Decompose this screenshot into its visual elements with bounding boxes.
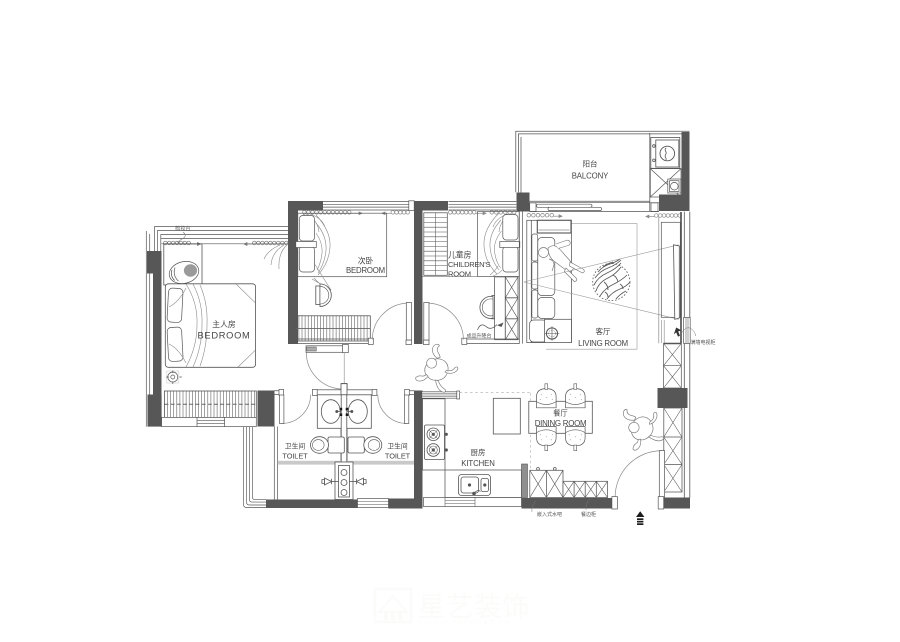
svg-text:ROOM: ROOM — [448, 269, 471, 278]
svg-text:客厅: 客厅 — [596, 326, 611, 336]
svg-text:TOILET: TOILET — [282, 452, 308, 461]
svg-text:卫生间: 卫生间 — [387, 442, 408, 451]
svg-text:主人房: 主人房 — [212, 319, 236, 329]
svg-text:星艺装饰: 星艺装饰 — [418, 591, 530, 622]
svg-text:卫生间: 卫生间 — [285, 442, 306, 451]
svg-text:BALCONY: BALCONY — [572, 172, 609, 181]
svg-text:厨房: 厨房 — [471, 448, 486, 457]
svg-text:儿童房: 儿童房 — [448, 250, 472, 260]
svg-text:次卧: 次卧 — [358, 256, 374, 266]
svg-text:XINGYI DECORATION: XINGYI DECORATION — [418, 620, 510, 627]
svg-text:餐厅: 餐厅 — [553, 409, 567, 418]
svg-text:阳台: 阳台 — [583, 159, 598, 169]
svg-text:餐边柜: 餐边柜 — [581, 511, 596, 518]
svg-text:BEDROOM: BEDROOM — [198, 331, 251, 341]
svg-text:CHILDREN'S: CHILDREN'S — [448, 260, 491, 269]
svg-text:成品升降台: 成品升降台 — [467, 333, 492, 340]
svg-text:LIVING ROOM: LIVING ROOM — [578, 339, 628, 348]
svg-text:TOILET: TOILET — [385, 452, 411, 461]
svg-text:嵌入式水吧: 嵌入式水吧 — [537, 511, 562, 518]
svg-text:KITCHEN: KITCHEN — [461, 459, 495, 468]
svg-text:DINING ROOM: DINING ROOM — [535, 419, 587, 428]
svg-text:梳妆台: 梳妆台 — [175, 224, 191, 232]
svg-text:满墙电视柜: 满墙电视柜 — [691, 339, 716, 346]
svg-text:BEDROOM: BEDROOM — [346, 266, 385, 275]
